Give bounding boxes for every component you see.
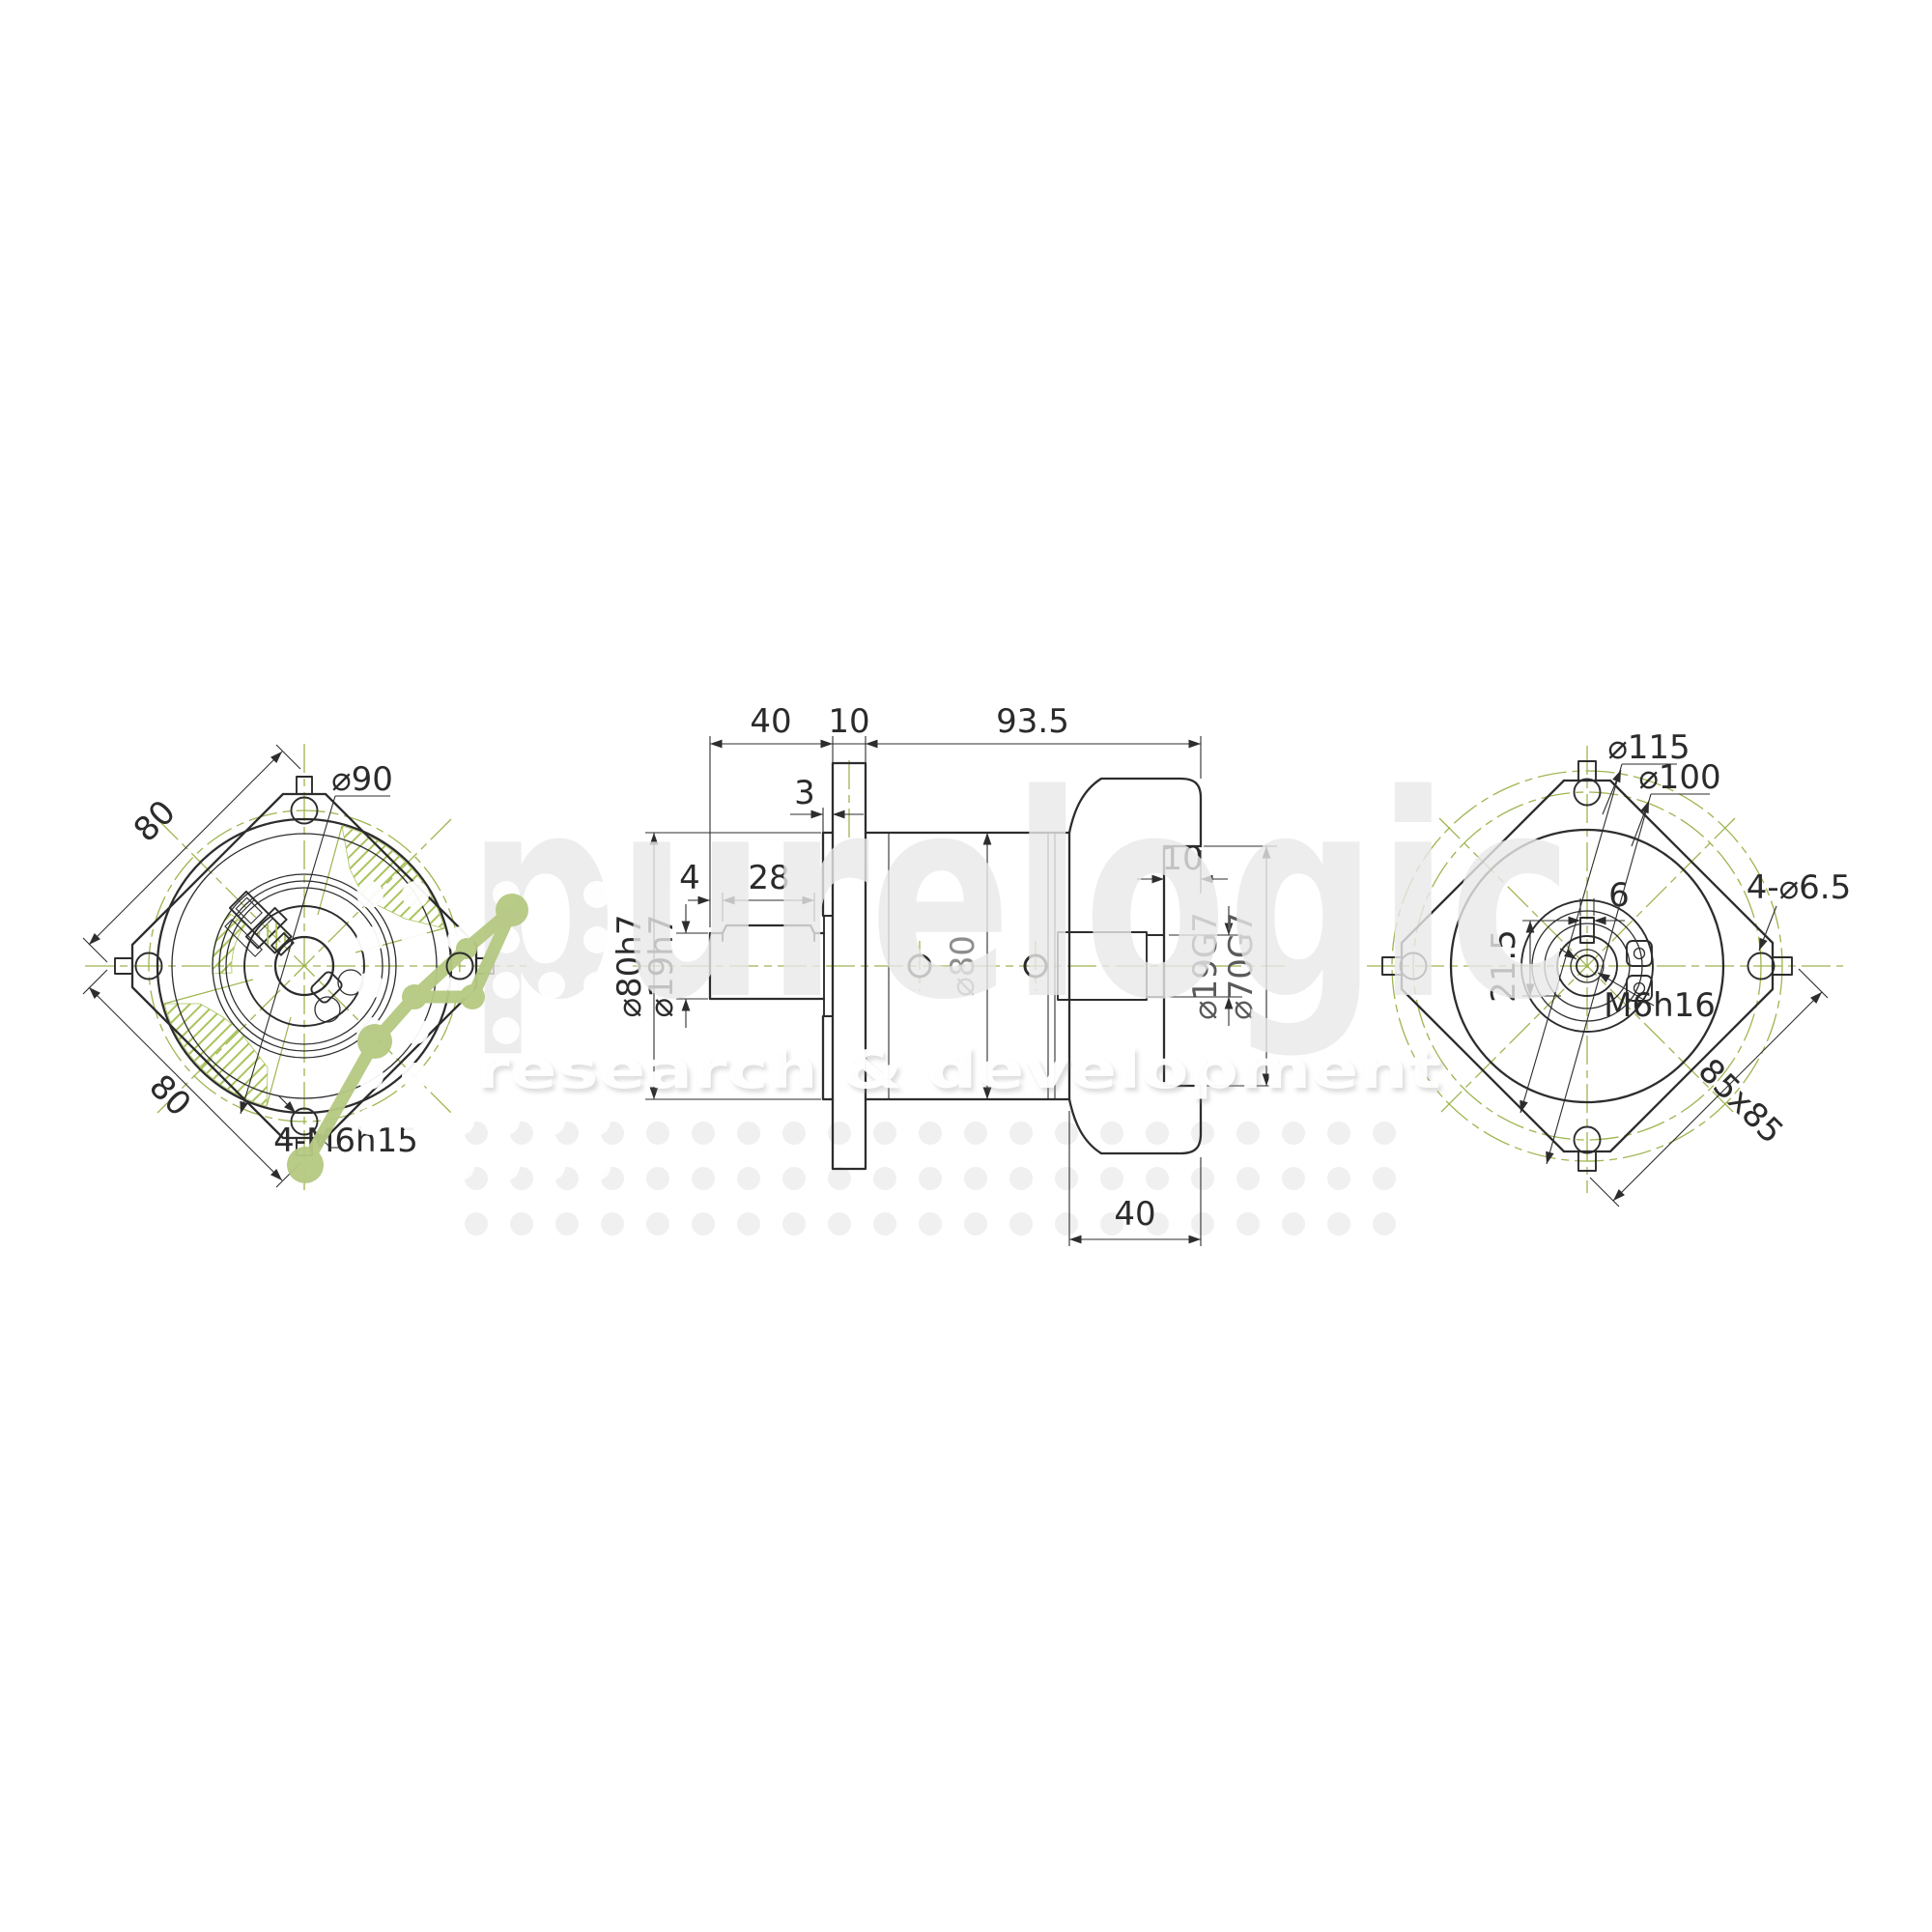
watermark-tagline: research & development <box>475 1039 1441 1100</box>
dim-screw-callout: M6h16 <box>1604 986 1716 1025</box>
dim-shaft-length: 40 <box>750 702 791 741</box>
engineering-drawing: 80 80 ⌀90 4-M6h15 <box>0 0 1932 1932</box>
dim-body-length: 93.5 <box>996 702 1069 741</box>
dim-flange-thickness: 10 <box>828 702 869 741</box>
dim-bolt-circle-100: ⌀100 <box>1638 758 1720 797</box>
dim-hole-callout: 4-⌀6.5 <box>1747 868 1851 907</box>
watermark-brand: purelogic <box>468 736 1574 1062</box>
dim-bell-length: 40 <box>1114 1195 1155 1234</box>
dim-key-width: 6 <box>1608 876 1630 915</box>
dim-bolt-circle: ⌀90 <box>331 760 393 799</box>
drawing-canvas: 80 80 ⌀90 4-M6h15 <box>0 0 1932 1932</box>
